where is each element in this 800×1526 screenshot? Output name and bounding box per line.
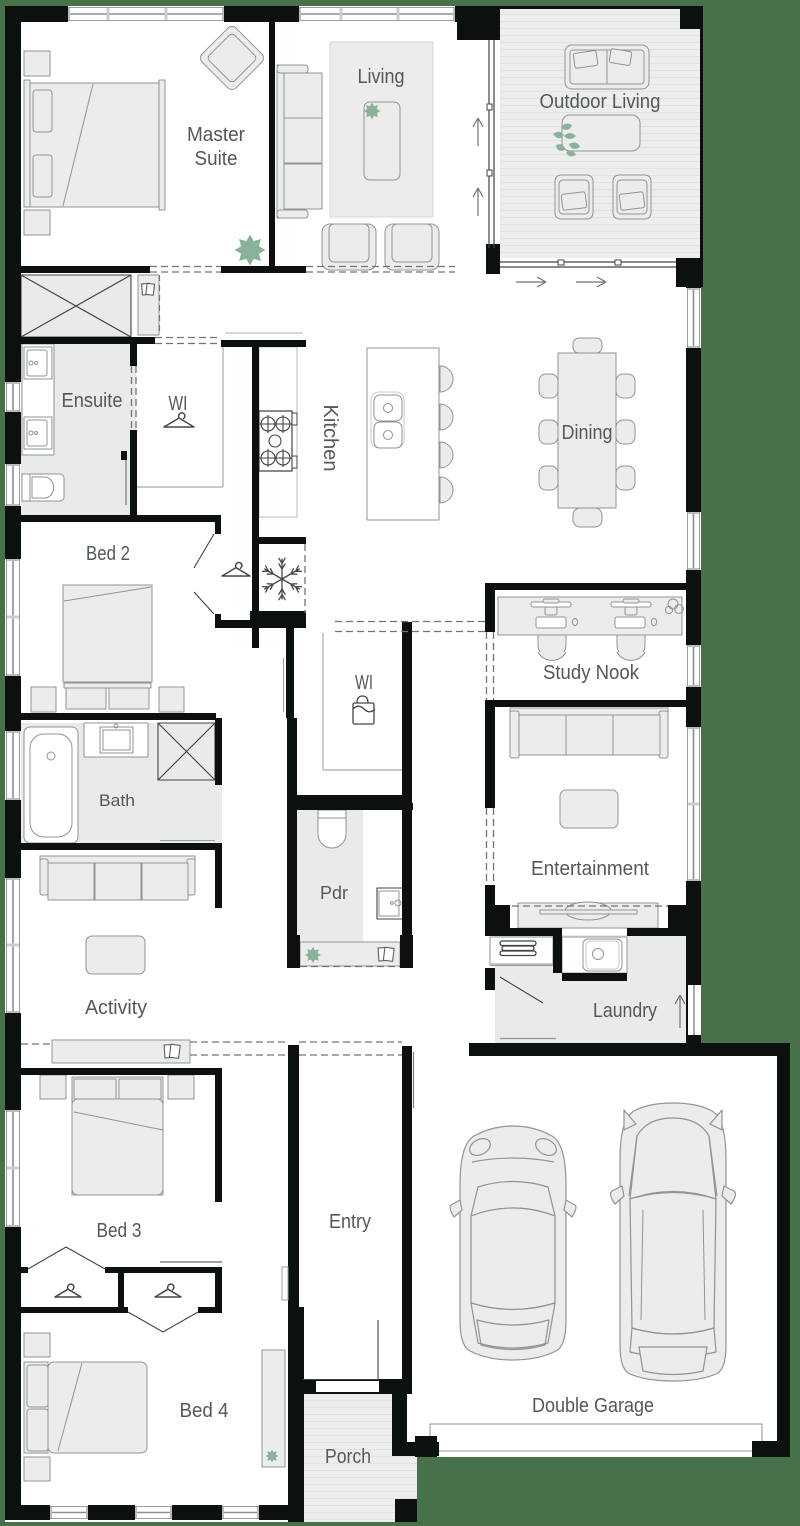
svg-text:Outdoor Living: Outdoor Living xyxy=(540,91,661,113)
svg-text:Entry: Entry xyxy=(329,1211,371,1233)
svg-text:Kitchen: Kitchen xyxy=(319,405,341,472)
svg-text:Porch: Porch xyxy=(325,1446,371,1468)
svg-text:Activity: Activity xyxy=(85,997,147,1019)
svg-text:Double Garage: Double Garage xyxy=(532,1395,654,1417)
svg-text:Laundry: Laundry xyxy=(593,1000,657,1022)
svg-text:Suite: Suite xyxy=(195,148,238,170)
svg-text:Bath: Bath xyxy=(99,791,135,810)
svg-text:Bed 2: Bed 2 xyxy=(86,543,130,565)
svg-text:Entertainment: Entertainment xyxy=(531,858,649,880)
svg-text:Living: Living xyxy=(358,66,405,88)
svg-text:WI: WI xyxy=(355,672,373,694)
svg-text:Ensuite: Ensuite xyxy=(62,390,123,412)
svg-text:Bed 4: Bed 4 xyxy=(180,1400,229,1422)
svg-text:WI: WI xyxy=(169,393,188,415)
svg-text:Master: Master xyxy=(187,124,245,146)
svg-text:Study Nook: Study Nook xyxy=(543,662,640,684)
svg-text:Pdr: Pdr xyxy=(320,883,348,903)
svg-text:Dining: Dining xyxy=(562,422,613,444)
svg-text:Bed 3: Bed 3 xyxy=(97,1220,142,1242)
